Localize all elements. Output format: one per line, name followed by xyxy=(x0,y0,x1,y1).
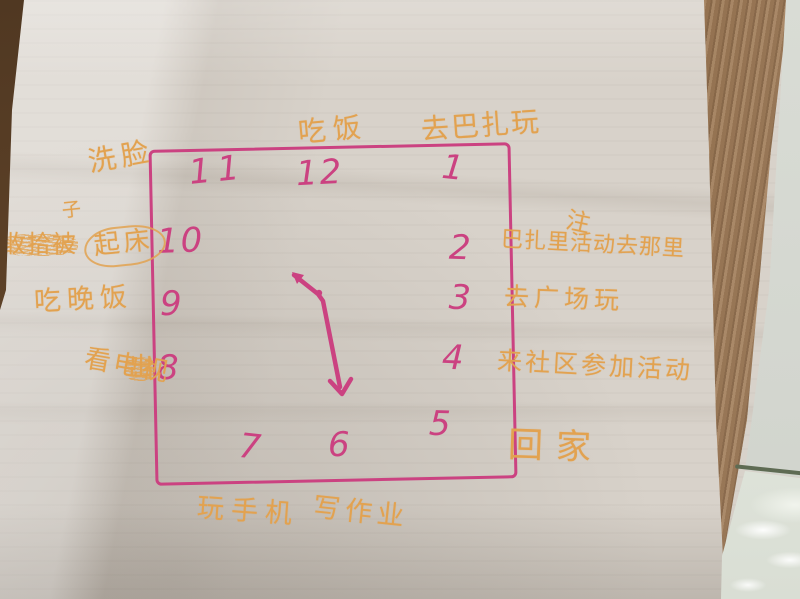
clock-number-3: 3 xyxy=(448,280,473,315)
label-eat-dinner: 吃晚饭 xyxy=(33,281,133,317)
label-superscript-zi: 子 xyxy=(61,199,82,223)
clock-number-6: 6 xyxy=(328,428,352,462)
clock-number-4: 4 xyxy=(441,341,466,376)
label-go-home: 回家 xyxy=(507,425,604,469)
label-scribbled-out-1: 收拾被 xyxy=(2,230,77,258)
clock-number-11: 11 xyxy=(187,150,248,190)
clock-number-1: 1 xyxy=(440,150,467,186)
clock-number-5: 5 xyxy=(428,407,453,442)
clock-number-9: 9 xyxy=(160,287,184,321)
photo-of-hand-drawn-clock: 11 12 1 10 2 9 3 8 4 7 6 5 吃饭 去巴扎玩 洗脸 子 … xyxy=(0,0,800,599)
clock-number-12: 12 xyxy=(295,155,344,191)
clock-number-2: 2 xyxy=(448,231,473,266)
clock-number-7: 7 xyxy=(237,429,264,465)
label-note-square-play: 去广场玩 xyxy=(504,283,625,316)
label-eat-meal: 吃饭 xyxy=(297,111,370,149)
